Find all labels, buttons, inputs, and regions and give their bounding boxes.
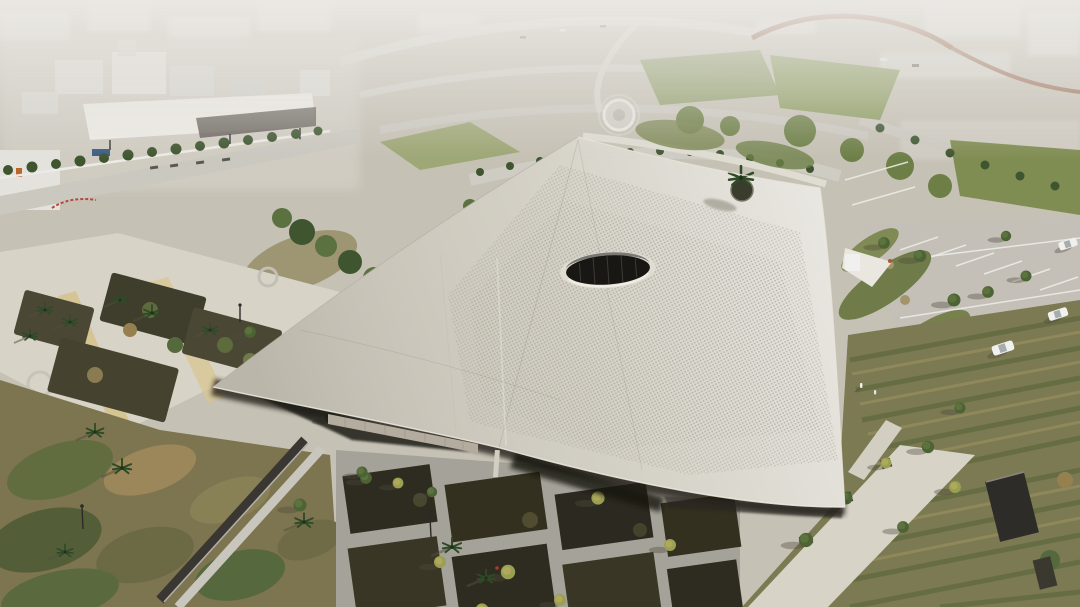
lamp-post bbox=[428, 514, 431, 517]
white-truck bbox=[845, 254, 860, 271]
red-object bbox=[495, 566, 499, 570]
aerial-photograph bbox=[0, 0, 1080, 607]
atmospheric-haze bbox=[0, 0, 1080, 160]
motorbike bbox=[888, 259, 892, 263]
lamp-post bbox=[80, 504, 84, 508]
